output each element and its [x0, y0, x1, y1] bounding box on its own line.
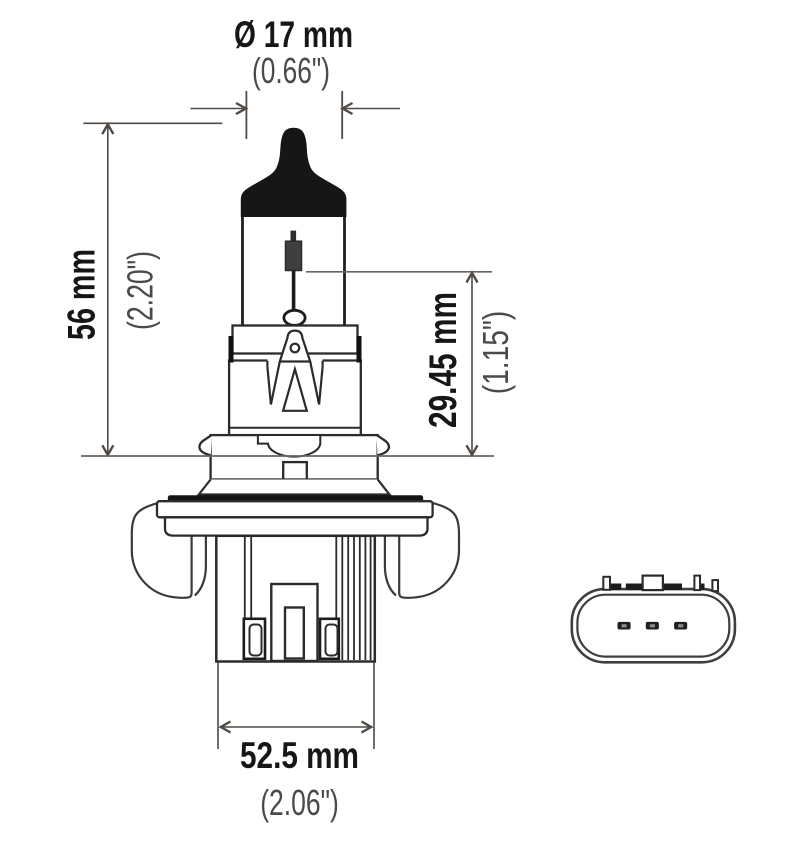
- svg-text:Ø 17 mm: Ø 17 mm: [234, 13, 353, 55]
- svg-text:52.5 mm: 52.5 mm: [240, 734, 359, 776]
- svg-text:(1.15"): (1.15"): [475, 311, 516, 395]
- svg-text:(2.06"): (2.06"): [260, 782, 339, 823]
- svg-text:56 mm: 56 mm: [61, 249, 104, 340]
- svg-text:(0.66"): (0.66"): [252, 50, 330, 91]
- svg-text:(2.20"): (2.20"): [120, 251, 161, 330]
- svg-text:29.45 mm: 29.45 mm: [422, 292, 465, 428]
